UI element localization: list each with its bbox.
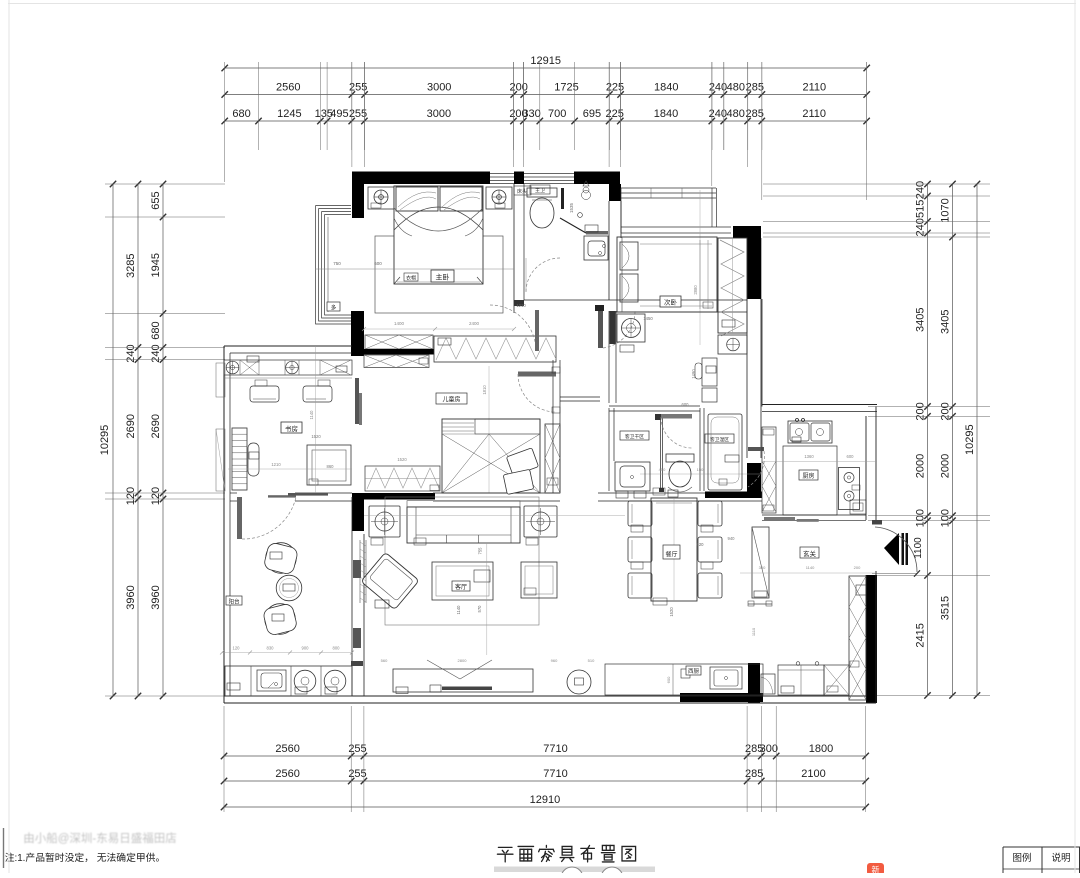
svg-text:1520: 1520 [669, 607, 674, 617]
svg-text:儿童房: 儿童房 [442, 396, 460, 404]
svg-text:3960: 3960 [150, 585, 162, 609]
svg-text:2690: 2690 [125, 414, 137, 438]
svg-text:830: 830 [267, 646, 275, 651]
svg-text:240: 240 [125, 344, 137, 362]
svg-text:1140: 1140 [806, 565, 815, 570]
svg-text:由小船@深圳-东易日盛福田店: 由小船@深圳-东易日盛福田店 [23, 831, 177, 845]
svg-text:2560: 2560 [276, 82, 300, 94]
svg-text:客卫湿区: 客卫湿区 [710, 436, 729, 443]
svg-text:100: 100 [940, 509, 952, 527]
svg-text:1520: 1520 [397, 457, 407, 462]
svg-text:新: 新 [872, 865, 880, 874]
svg-text:285: 285 [745, 768, 763, 780]
svg-text:120: 120 [125, 487, 137, 505]
svg-text:200: 200 [854, 565, 861, 570]
svg-text:225: 225 [606, 108, 624, 120]
svg-text:1810: 1810 [482, 385, 487, 395]
svg-text:1725: 1725 [554, 82, 578, 94]
svg-text:12910: 12910 [530, 794, 561, 806]
svg-text:10295: 10295 [99, 425, 111, 456]
svg-text:600: 600 [666, 676, 671, 683]
svg-text:600: 600 [374, 261, 382, 266]
svg-text:10295: 10295 [964, 424, 976, 455]
svg-text:图例: 图例 [1012, 852, 1031, 864]
svg-text:330: 330 [522, 108, 540, 120]
svg-text:1945: 1945 [150, 253, 162, 277]
svg-text:1840: 1840 [654, 108, 678, 120]
svg-text:西厨: 西厨 [688, 668, 700, 675]
svg-text:2880: 2880 [693, 285, 698, 295]
svg-text:480: 480 [727, 108, 745, 120]
svg-text:7710: 7710 [543, 743, 567, 755]
svg-text:240: 240 [150, 344, 162, 362]
svg-text:2110: 2110 [802, 108, 826, 120]
svg-text:客卫干区: 客卫干区 [625, 433, 644, 440]
svg-text:说明: 说明 [1051, 852, 1070, 864]
svg-text:1100: 1100 [913, 537, 924, 559]
svg-text:3000: 3000 [427, 82, 451, 94]
svg-text:655: 655 [150, 191, 162, 209]
svg-text:450: 450 [659, 467, 666, 472]
svg-text:玄关: 玄关 [803, 549, 817, 558]
svg-text:1070: 1070 [940, 198, 952, 222]
svg-text:900: 900 [302, 646, 310, 651]
svg-text:800: 800 [333, 646, 341, 651]
svg-text:680: 680 [232, 108, 250, 120]
svg-text:1520: 1520 [311, 434, 321, 439]
svg-text:700: 700 [548, 108, 566, 120]
svg-text:750: 750 [333, 261, 341, 266]
svg-text:510: 510 [588, 658, 595, 663]
svg-text:2100: 2100 [801, 768, 825, 780]
svg-text:560: 560 [381, 658, 388, 663]
svg-text:240: 240 [914, 218, 926, 236]
svg-text:注:1.产品暂时没定， 无法确定甲供。: 注:1.产品暂时没定， 无法确定甲供。 [5, 851, 166, 864]
svg-text:570: 570 [477, 605, 482, 613]
svg-text:3285: 3285 [125, 254, 137, 278]
svg-text:1110: 1110 [751, 627, 756, 636]
svg-text:1535: 1535 [569, 202, 574, 213]
svg-text:床头: 床头 [517, 188, 527, 195]
svg-text:1490: 1490 [691, 369, 696, 379]
svg-text:620: 620 [697, 542, 705, 547]
svg-text:240: 240 [709, 108, 727, 120]
svg-text:主卧: 主卧 [436, 273, 450, 282]
svg-text:3405: 3405 [940, 310, 952, 334]
svg-text:2000: 2000 [915, 454, 927, 478]
svg-text:515: 515 [915, 200, 927, 218]
svg-text:350: 350 [759, 565, 766, 570]
svg-text:厨房: 厨房 [802, 472, 814, 480]
svg-text:755: 755 [478, 547, 483, 555]
svg-text:1210: 1210 [271, 462, 281, 467]
svg-text:120: 120 [233, 646, 241, 651]
svg-text:200: 200 [915, 402, 927, 420]
svg-text:2110: 2110 [802, 82, 826, 94]
svg-text:2800: 2800 [458, 658, 468, 663]
svg-text:次卧: 次卧 [664, 298, 678, 307]
svg-text:150: 150 [697, 467, 704, 472]
svg-text:客厅: 客厅 [455, 583, 467, 591]
svg-text:1360: 1360 [804, 454, 814, 459]
svg-text:1400: 1400 [394, 321, 405, 326]
svg-text:600: 600 [682, 402, 690, 407]
svg-text:285: 285 [746, 108, 764, 120]
svg-text:1450: 1450 [643, 316, 653, 321]
svg-text:225: 225 [606, 82, 624, 94]
svg-text:2690: 2690 [150, 414, 162, 438]
svg-text:1140: 1140 [456, 605, 461, 615]
svg-text:695: 695 [583, 108, 601, 120]
svg-text:285: 285 [746, 82, 764, 94]
svg-text:多: 多 [331, 304, 337, 312]
svg-text:495: 495 [330, 108, 348, 120]
svg-text:3000: 3000 [427, 108, 451, 120]
svg-text:960: 960 [551, 658, 558, 663]
svg-text:2000: 2000 [940, 454, 952, 478]
svg-text:940: 940 [728, 536, 736, 541]
svg-text:240: 240 [915, 181, 927, 199]
svg-text:200: 200 [510, 82, 528, 94]
svg-text:3405: 3405 [915, 308, 927, 332]
svg-text:1210: 1210 [516, 303, 526, 308]
svg-text:1800: 1800 [809, 743, 833, 755]
svg-text:2560: 2560 [275, 743, 299, 755]
svg-text:860: 860 [327, 464, 335, 469]
svg-text:120: 120 [150, 487, 162, 505]
svg-text:餐厅: 餐厅 [665, 551, 677, 559]
svg-text:3960: 3960 [125, 585, 137, 609]
svg-text:680: 680 [150, 321, 162, 339]
svg-text:阳台: 阳台 [228, 598, 240, 606]
svg-text:200: 200 [940, 402, 952, 420]
svg-text:3515: 3515 [939, 596, 951, 620]
svg-text:1245: 1245 [277, 108, 301, 120]
svg-text:2415: 2415 [915, 623, 927, 647]
svg-text:480: 480 [727, 82, 745, 94]
svg-text:2560: 2560 [275, 768, 299, 780]
svg-text:2400: 2400 [469, 321, 480, 326]
svg-text:7710: 7710 [543, 768, 567, 780]
svg-text:主卫: 主卫 [535, 187, 545, 194]
svg-text:100: 100 [915, 509, 927, 527]
svg-text:12915: 12915 [530, 55, 561, 67]
svg-text:600: 600 [847, 454, 855, 459]
svg-text:衣帽: 衣帽 [406, 275, 416, 282]
svg-text:1140: 1140 [309, 410, 314, 420]
svg-text:300: 300 [760, 743, 778, 755]
svg-text:1840: 1840 [654, 82, 678, 94]
svg-text:书房: 书房 [285, 424, 298, 433]
